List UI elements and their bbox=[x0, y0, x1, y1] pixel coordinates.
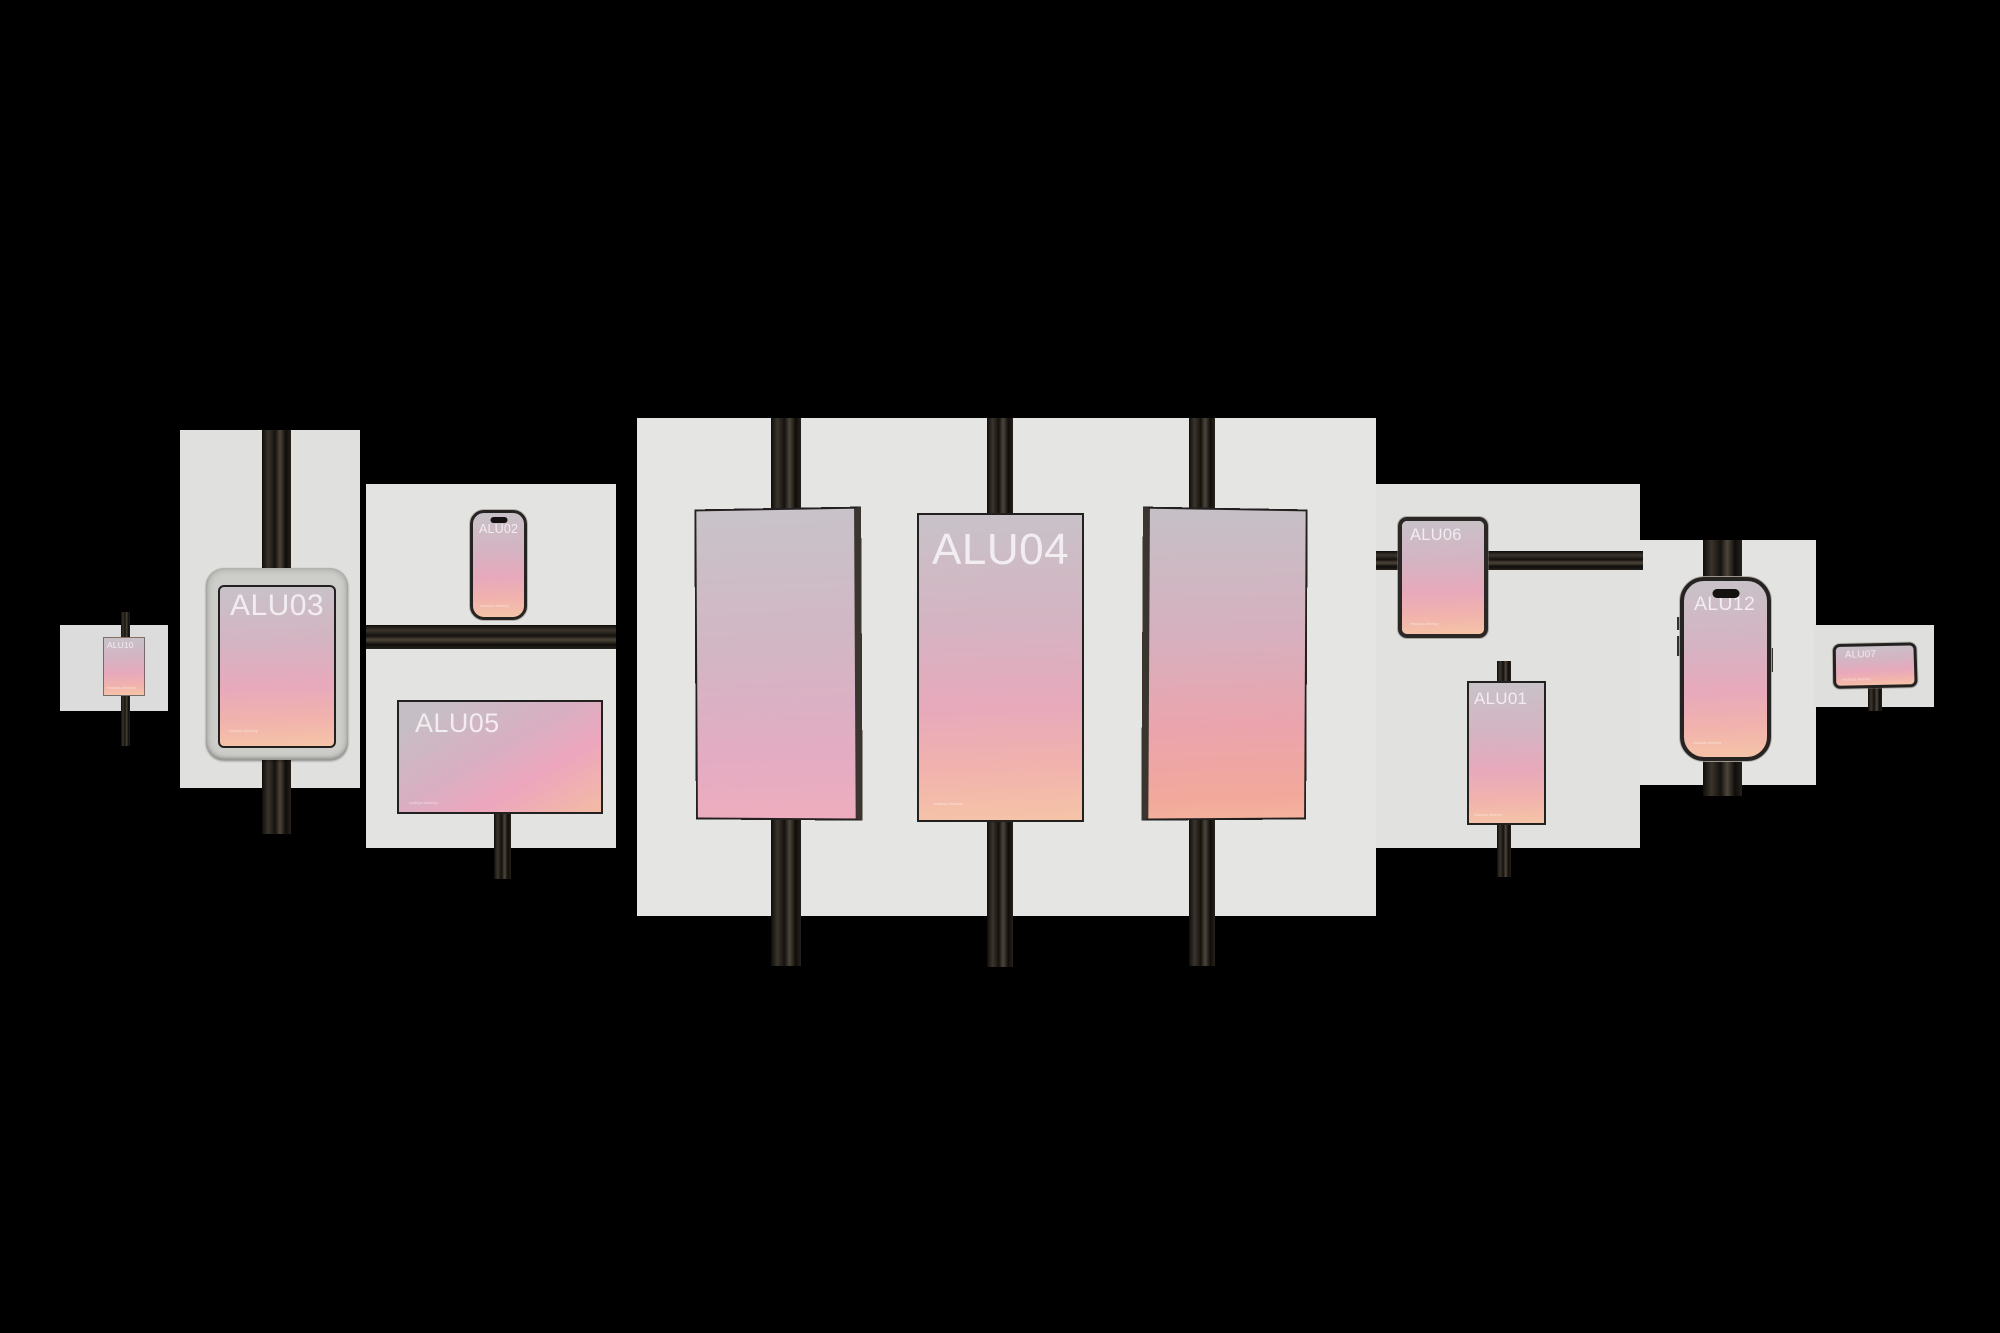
device-alu03: ALU03 mockups directory bbox=[218, 585, 336, 748]
device-tilted-display-right bbox=[1141, 507, 1307, 821]
device-caption: mockups directory bbox=[229, 730, 258, 733]
device-caption: mockups directory bbox=[934, 803, 963, 806]
mounting-rail bbox=[1189, 818, 1215, 966]
mounting-rail bbox=[987, 418, 1013, 515]
mounting-rail bbox=[121, 612, 130, 639]
device-label: ALU01 bbox=[1474, 690, 1527, 707]
device-caption: mockups directory bbox=[409, 802, 438, 805]
dynamic-island bbox=[1712, 589, 1739, 598]
device-alu10: ALU10 mockups directory bbox=[103, 637, 145, 696]
device-label: ALU06 bbox=[1410, 527, 1462, 544]
mounting-rail bbox=[262, 430, 291, 570]
mounting-rail-horizontal bbox=[366, 625, 616, 649]
device-alu04: ALU04 mockups directory bbox=[917, 513, 1084, 822]
device-alu03-case: ALU03 mockups directory bbox=[206, 568, 348, 760]
device-caption: mockups directory bbox=[1842, 678, 1871, 682]
mounting-rail bbox=[494, 813, 511, 879]
device-label: ALU05 bbox=[415, 710, 500, 737]
mounting-rail bbox=[121, 694, 130, 746]
device-alu02: ALU02 mockups directory bbox=[470, 510, 527, 620]
mounting-rail bbox=[1703, 540, 1742, 582]
device-label: ALU03 bbox=[230, 591, 324, 621]
dynamic-island bbox=[490, 517, 507, 523]
mounting-rail bbox=[262, 757, 291, 834]
device-tilted-display-left bbox=[694, 507, 862, 821]
mounting-rail bbox=[771, 818, 801, 966]
mounting-rail bbox=[1868, 687, 1882, 711]
device-caption: mockups directory bbox=[1693, 742, 1722, 745]
device-label: ALU04 bbox=[932, 528, 1069, 572]
device-alu06: ALU06 mockups directory bbox=[1398, 517, 1488, 638]
device-caption: mockups directory bbox=[480, 605, 509, 608]
device-label: ALU02 bbox=[479, 523, 518, 536]
device-caption: mockups directory bbox=[107, 687, 136, 690]
device-alu05: ALU05 mockups directory bbox=[397, 700, 603, 814]
mounting-rail bbox=[771, 418, 801, 516]
mounting-rail bbox=[1497, 823, 1511, 877]
mounting-rail bbox=[1189, 418, 1215, 511]
device-label: ALU10 bbox=[107, 641, 134, 650]
mounting-rail bbox=[1703, 756, 1742, 796]
device-caption: mockups directory bbox=[1474, 814, 1503, 817]
device-alu01: ALU01 mockups directory bbox=[1467, 681, 1546, 825]
mockup-scene: ALU10 mockups directory ALU03 mockups di… bbox=[0, 0, 2000, 1333]
device-label: ALU07 bbox=[1845, 650, 1876, 661]
device-caption: mockups directory bbox=[1410, 623, 1439, 626]
mounting-rail bbox=[987, 821, 1013, 967]
device-alu12: ALU12 mockups directory bbox=[1680, 577, 1771, 761]
device-alu07: ALU07 mockups directory bbox=[1833, 642, 1918, 688]
